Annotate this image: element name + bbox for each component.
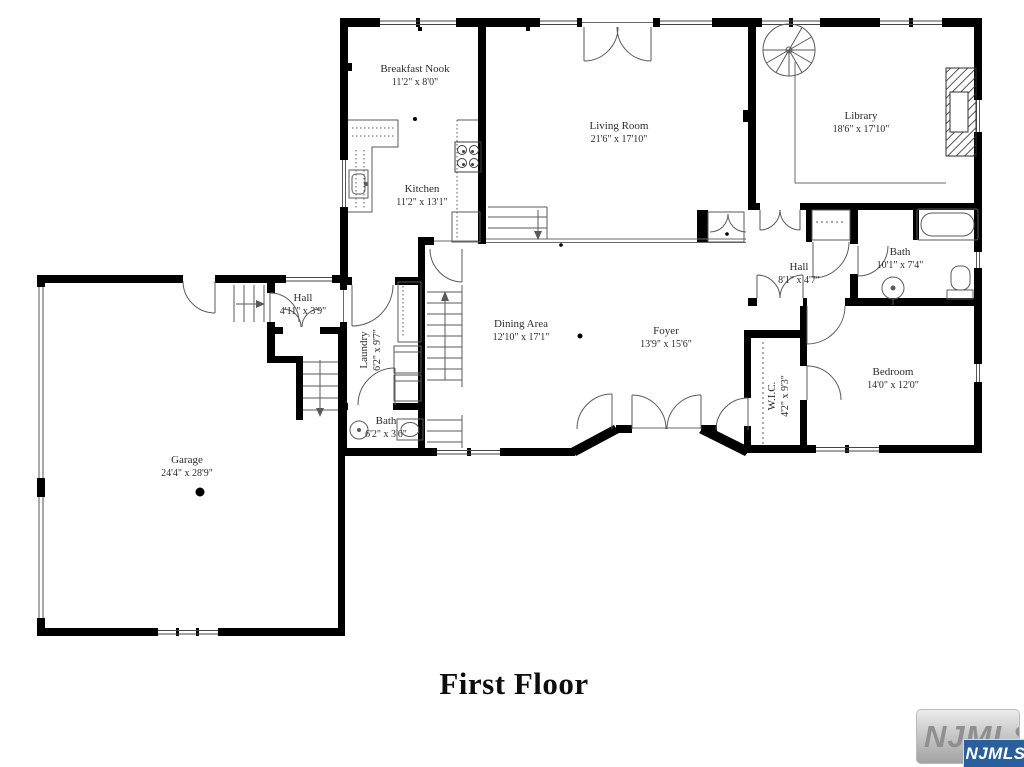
room-label-bath-main: Bath 10'1" x 7'4" <box>877 246 924 272</box>
room-name: Hall <box>778 261 820 275</box>
basement-stairs <box>303 360 338 417</box>
njmls-badge: NJMLS <box>963 739 1024 767</box>
room-label-foyer: Foyer 13'9" x 15'6" <box>640 325 692 351</box>
bathtub-icon <box>917 209 978 240</box>
njmls-badge-text: NJMLS <box>965 744 1024 764</box>
room-name: Bedroom <box>867 366 919 380</box>
room-label-kitchen: Kitchen 11'2" x 13'1" <box>396 183 447 209</box>
room-dims: 11'2" x 13'1" <box>396 197 447 210</box>
room-name: Laundry <box>358 329 372 371</box>
room-name: Living Room <box>590 120 649 134</box>
fireplace-icon <box>946 68 976 156</box>
room-name: W.I.C. <box>766 375 780 417</box>
room-name: Kitchen <box>396 183 447 197</box>
room-dims: 10'1" x 7'4" <box>877 260 924 273</box>
living-room-steps <box>488 207 547 240</box>
room-dims: 21'6" x 17'10" <box>590 134 649 147</box>
room-dims: 13'9" x 15'6" <box>640 339 692 352</box>
room-dims: 6'2" x 3'6" <box>365 429 407 442</box>
room-name: Bath <box>365 415 407 429</box>
floorplan-page: Breakfast Nook 11'2" x 8'0" Kitchen 11'2… <box>0 0 1024 767</box>
room-label-laundry: Laundry 6'2" x 9'7" <box>358 329 384 371</box>
room-name: Breakfast Nook <box>380 63 449 77</box>
toilet-icon <box>947 290 973 299</box>
room-name: Dining Area <box>493 318 550 332</box>
room-name: Garage <box>161 454 213 468</box>
room-dims: 14'0" x 12'0" <box>867 380 919 393</box>
room-dims: 24'4" x 28'9" <box>161 468 213 481</box>
main-staircase <box>427 285 462 448</box>
floorplan-title: First Floor <box>439 666 588 702</box>
room-label-library: Library 18'6" x 17'10" <box>833 110 890 136</box>
room-dims: 18'6" x 17'10" <box>833 124 890 137</box>
room-label-garage: Garage 24'4" x 28'9" <box>161 454 213 480</box>
room-dims: 4'11" x 3'9" <box>280 306 326 319</box>
stove-icon <box>455 142 481 172</box>
room-label-bath-small: Bath 6'2" x 3'6" <box>365 415 407 441</box>
room-name: Bath <box>877 246 924 260</box>
room-label-hall-upper: Hall 8'1" x 4'7" <box>778 261 820 287</box>
garage-steps <box>234 285 265 322</box>
room-label-bedroom: Bedroom 14'0" x 12'0" <box>867 366 919 392</box>
laundry-machines <box>394 282 421 401</box>
room-label-wic: W.I.C. 4'2" x 9'3" <box>766 375 792 417</box>
room-name: Library <box>833 110 890 124</box>
room-dims: 8'1" x 4'7" <box>778 275 820 288</box>
room-dims: 4'2" x 9'3" <box>780 375 793 417</box>
room-label-hall-lower: Hall 4'11" x 3'9" <box>280 292 326 318</box>
room-name: Hall <box>280 292 326 306</box>
room-label-dining-area: Dining Area 12'10" x 17'1" <box>493 318 550 344</box>
kitchen-sink <box>349 170 368 198</box>
room-dims: 6'2" x 9'7" <box>372 329 385 371</box>
room-dims: 12'10" x 17'1" <box>493 332 550 345</box>
room-label-living-room: Living Room 21'6" x 17'10" <box>590 120 649 146</box>
spiral-staircase <box>763 24 815 76</box>
room-dims: 11'2" x 8'0" <box>380 77 449 90</box>
room-name: Foyer <box>640 325 692 339</box>
room-label-breakfast-nook: Breakfast Nook 11'2" x 8'0" <box>380 63 449 89</box>
